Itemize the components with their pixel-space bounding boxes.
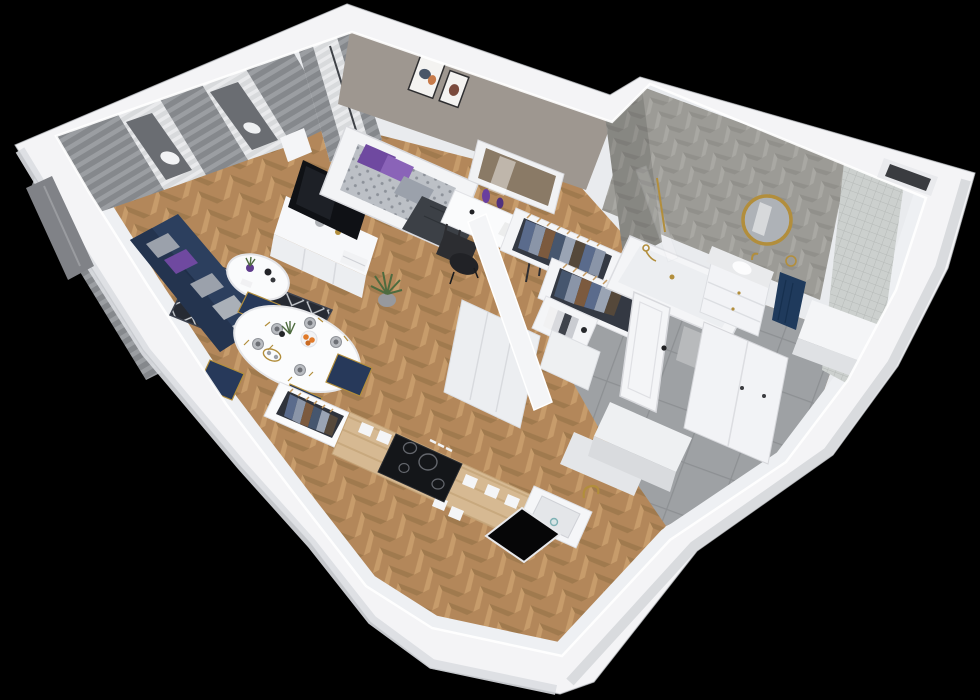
door-handle	[661, 345, 666, 350]
cup	[274, 355, 278, 359]
apartment-3d-render	[0, 0, 980, 700]
purple-vase-small	[497, 198, 504, 209]
small-black-item	[470, 210, 475, 215]
black-cup-small	[271, 278, 276, 283]
gold-knob	[731, 307, 734, 310]
purple-vase-tall	[482, 189, 490, 203]
tub-drain	[670, 275, 675, 280]
wardrobe-handle	[740, 386, 744, 390]
round-mirror	[743, 196, 791, 244]
wardrobe-handle	[762, 394, 766, 398]
black-cup	[265, 269, 272, 276]
carafe	[279, 331, 285, 337]
orange	[305, 340, 310, 345]
dark-bottle	[581, 327, 587, 333]
orange	[303, 334, 309, 340]
plant-pot	[378, 293, 396, 307]
cup	[267, 351, 271, 355]
gold-knob	[737, 291, 740, 294]
drain-cover	[551, 519, 558, 526]
